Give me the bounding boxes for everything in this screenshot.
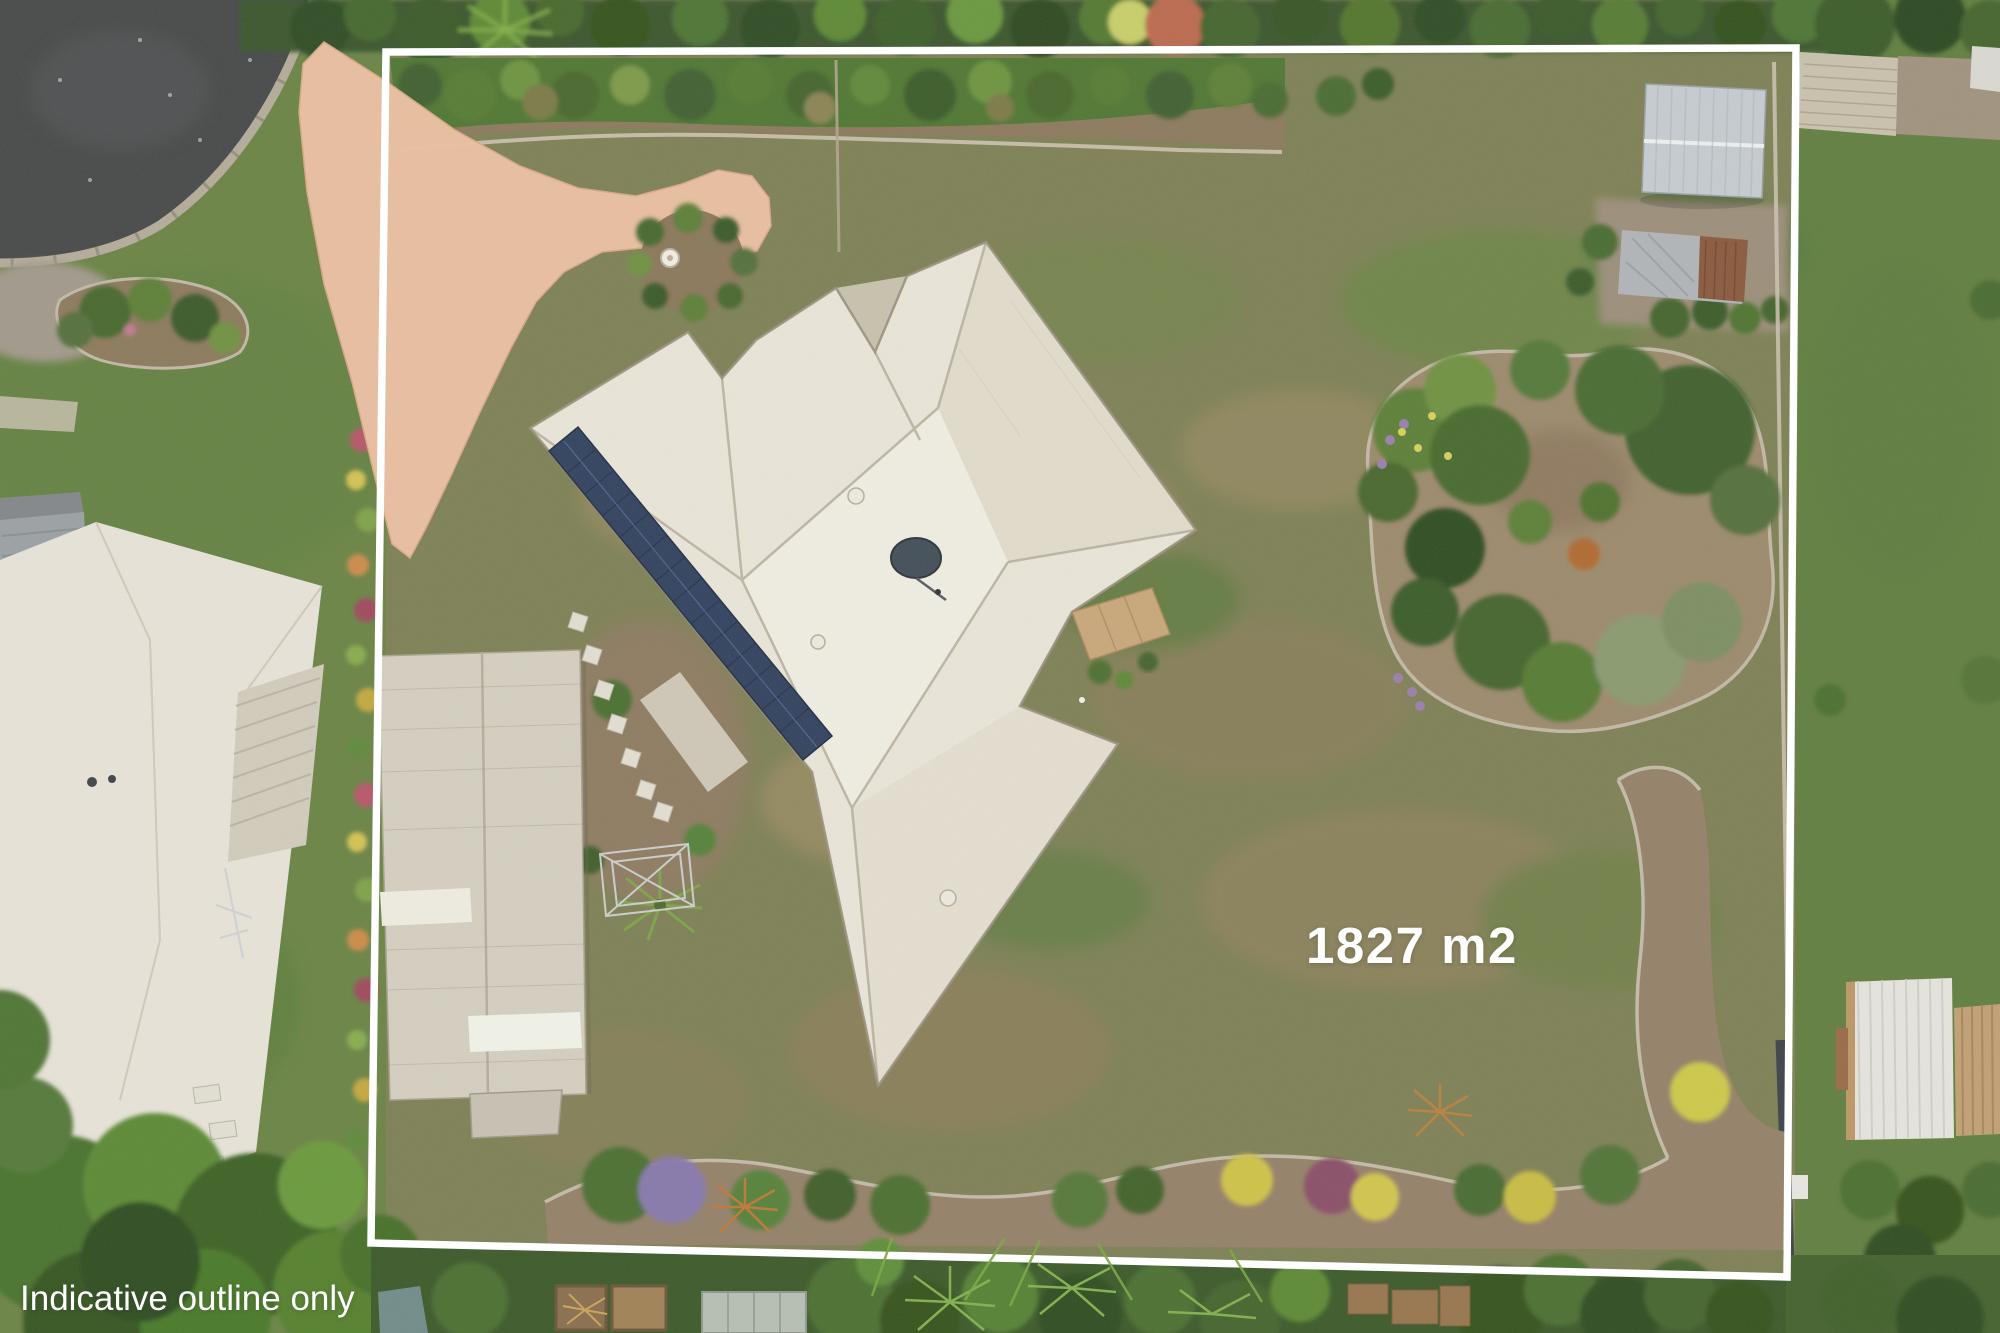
aerial-photo: 1827 m2 Indicative outline only (0, 0, 2000, 1333)
area-label: 1827 m2 (1306, 916, 1518, 975)
aerial-photo-canvas (0, 0, 2000, 1333)
disclaimer-label: Indicative outline only (20, 1279, 355, 1319)
photo-grain (0, 0, 2000, 1333)
